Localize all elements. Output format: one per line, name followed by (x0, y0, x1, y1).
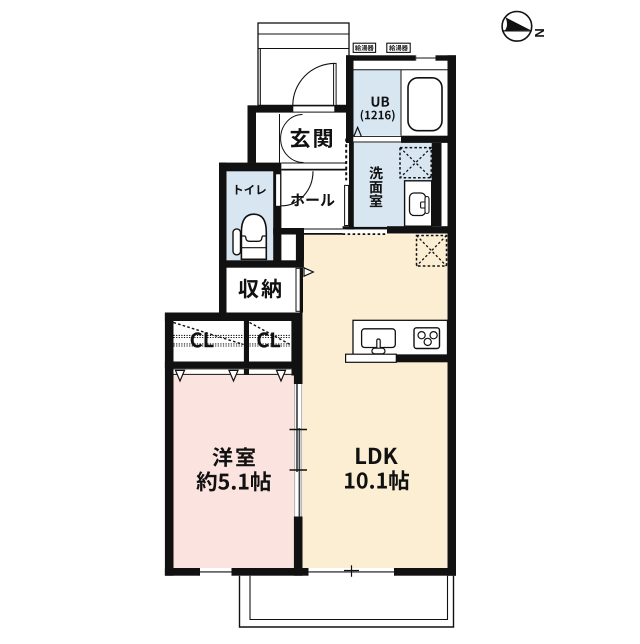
svg-text:N: N (532, 28, 547, 37)
